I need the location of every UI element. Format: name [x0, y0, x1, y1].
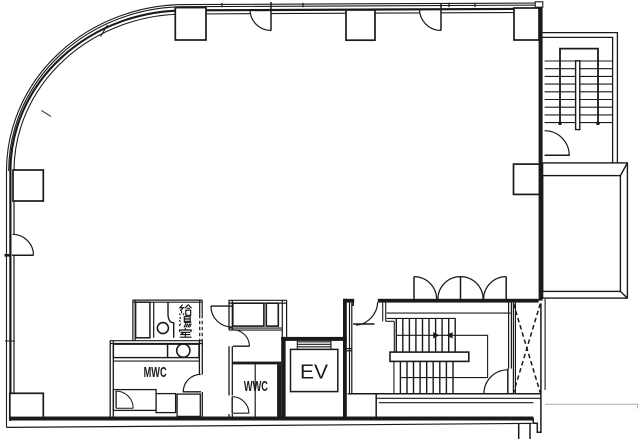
svg-text:MWC: MWC [144, 365, 167, 381]
svg-text:EV: EV [300, 360, 328, 383]
svg-text:WWC: WWC [244, 379, 268, 395]
